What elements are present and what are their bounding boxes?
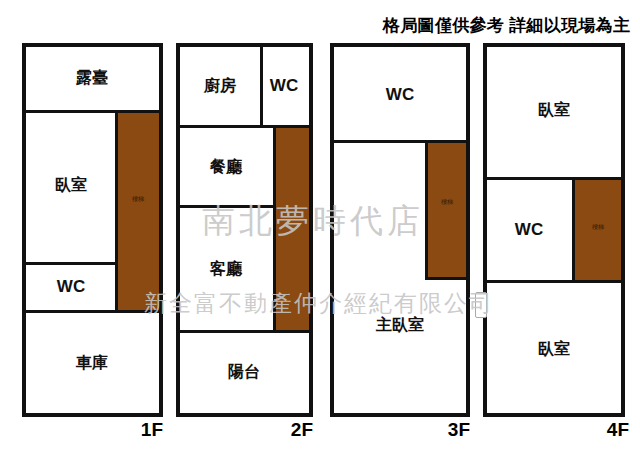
disclaimer-text: 格局圖僅供參考 詳細以現場為主 <box>383 14 630 37</box>
room-kitchen-label: 廚房 <box>204 76 236 97</box>
room-terrace-label: 露臺 <box>76 68 108 89</box>
stairs-strip: 樓梯 <box>118 113 159 310</box>
floor-label-4f: 4F <box>483 419 629 441</box>
wall-divider <box>26 310 159 313</box>
room-bedroom-label: 臥室 <box>538 339 570 360</box>
room-garage-label: 車庫 <box>76 353 108 374</box>
room-dining-label: 餐廳 <box>210 157 242 178</box>
wall-divider <box>425 277 466 280</box>
floor-label-2f: 2F <box>176 419 313 441</box>
stairs-label: 樓梯 <box>592 223 604 232</box>
room-wc-label: WC <box>515 220 543 240</box>
stairs-label: 樓梯 <box>132 195 144 204</box>
stairs-strip: 樓梯 <box>575 180 621 280</box>
room-wc-label: WC <box>57 277 85 297</box>
wall-divider <box>180 330 309 333</box>
floorplan-canvas: 格局圖僅供參考 詳細以現場為主 樓梯 露臺 臥室 WC 車庫 1F 廚房 WC … <box>0 0 640 461</box>
room-balcony-label: 陽台 <box>228 362 260 383</box>
watermark-store-name: 南北夢時代店 <box>202 199 424 244</box>
floorplan-1f: 樓梯 露臺 臥室 WC 車庫 <box>22 43 163 417</box>
room-living-label: 客廳 <box>210 259 242 280</box>
room-wc-label: WC <box>270 76 298 96</box>
wall-divider <box>26 262 115 265</box>
floor-label-1f: 1F <box>22 419 163 441</box>
floorplan-4f: 樓梯 臥室 WC 臥室 <box>483 43 625 417</box>
room-bedroom-label: 臥室 <box>538 100 570 121</box>
wall-divider <box>260 47 263 125</box>
room-wc-label: WC <box>386 85 414 105</box>
wall-divider <box>487 280 621 283</box>
stairs-strip: 樓梯 <box>428 143 466 277</box>
stairs-label: 樓梯 <box>441 198 453 207</box>
room-bedroom-label: 臥室 <box>55 175 87 196</box>
floor-label-3f: 3F <box>330 419 470 441</box>
watermark-company-name: 新全富不動產仲介經紀有限公司 <box>144 288 494 319</box>
